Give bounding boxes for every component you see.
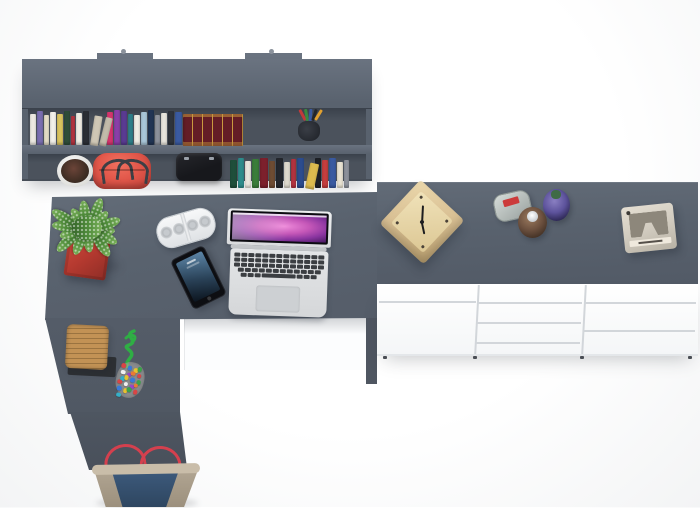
sideboard [377,178,698,380]
key [272,269,278,273]
key [255,273,261,277]
key [283,254,289,258]
book-spine [337,162,343,188]
book-spine [64,111,70,145]
bead [136,373,141,378]
key [251,268,257,272]
bead [123,381,128,386]
key [304,275,310,279]
key [293,270,299,274]
book-row-lower [230,157,356,188]
key [290,259,296,263]
key [262,263,268,267]
sideboard-section-seam [474,285,479,355]
bead [132,389,137,394]
key [276,264,282,268]
bead [121,363,126,368]
brown-bottle [518,207,547,238]
key [234,257,240,261]
key [311,260,317,264]
potted-plant [61,159,89,183]
screen-glare [232,212,294,242]
bottle-cap [551,190,561,199]
plant-leaf [72,216,102,240]
key [304,265,310,269]
sideboard-foot [383,356,387,359]
pens [298,109,322,123]
key [265,269,271,273]
clock-screw [421,245,425,249]
key [248,258,254,262]
key [248,263,254,267]
clock-screw [445,219,449,223]
speaker-driver [159,225,174,240]
key [258,268,264,272]
key [248,253,254,257]
book-spine [44,115,49,145]
drawer-seam [584,302,696,304]
book-spine [50,112,56,145]
flask-red-label [502,196,519,207]
key [283,259,289,263]
key [255,263,261,267]
key [262,258,268,262]
clock-screw [395,221,399,225]
key [255,253,261,257]
bead [126,387,131,392]
bead [127,365,132,370]
red-handbag [93,153,151,189]
book-spine [114,110,120,145]
book-spine [134,115,140,145]
book-spine [252,159,259,188]
book-spine [291,159,296,188]
key [311,275,317,279]
bag-buckle [209,157,214,160]
book-spine [329,158,336,188]
black-camera-bag [176,153,222,181]
book-spine [276,158,283,188]
speaker-driver [198,214,213,229]
drawer-seam [476,322,581,324]
phone-home-button [206,296,211,301]
key [290,264,296,268]
laptop [224,208,334,324]
laptop-bezel [230,210,329,244]
drawer-seam [475,342,580,344]
book-spine [161,113,167,145]
laptop-keyboard-deck [228,248,328,317]
bead [130,377,135,382]
book-spine [83,111,89,145]
shelf-mount-knob [121,49,126,54]
book-spine [168,111,174,145]
key [297,255,303,259]
sideboard-foot [473,356,477,359]
book-spine [322,160,328,188]
clock-center [419,219,425,225]
key [307,270,313,274]
sideboard-front [377,284,698,356]
book-spine [238,158,244,188]
key [314,270,320,274]
encyclopedia-set [183,114,243,146]
book-spine [269,161,275,188]
wall-shelf [22,48,372,182]
drawer-seam [583,330,695,332]
book-spine [245,161,251,188]
book-spine [128,114,133,145]
key [241,253,247,257]
book-spine [284,162,290,188]
key [255,258,261,262]
bead [120,369,125,374]
shelf-mount-knob [269,49,274,54]
book-spine [57,114,63,145]
key [318,265,324,269]
key [290,254,296,258]
key [234,262,240,266]
purple-bottle [543,189,570,221]
book-spine [76,113,82,145]
sideboard-section-seam [581,285,586,355]
key [234,252,240,256]
key [244,268,250,272]
sideboard-foot [688,356,692,359]
sideboard-bottom-edge [377,354,698,356]
key [297,265,303,269]
book-spine [37,111,43,145]
key [276,254,282,258]
bead [116,385,121,390]
bottle-cap [527,211,538,222]
key [318,255,324,259]
key [297,260,303,264]
bead [124,375,129,380]
desk-plant-foliage [44,192,130,266]
book-spine [230,160,237,188]
book-row-upper [30,111,184,145]
book-spine [297,158,304,188]
book-spine [30,114,36,145]
drawer-seam [477,302,582,304]
bead-charm [112,328,152,400]
book-spine [121,111,127,145]
book-spine [155,115,160,145]
laptop-keyboard [234,252,325,279]
key [279,269,285,273]
book-spine [175,112,182,145]
key [269,264,275,268]
key [248,273,254,277]
key [269,254,275,258]
bead [130,371,135,376]
key [311,255,317,259]
key [276,259,282,263]
book-spine [71,116,75,145]
clock-screw [419,195,423,199]
wicker-basket [65,324,109,370]
bead [133,383,138,388]
book-spine [141,112,147,145]
key [241,258,247,262]
bead [117,379,122,384]
handbag-seam [99,169,145,171]
shelf-body [22,59,372,181]
laptop-display [232,212,327,242]
key [300,270,306,274]
shelf-top-slab [22,59,372,109]
key [283,264,289,268]
floor-tote-bag [88,444,206,507]
bag-buckle [184,157,189,160]
key [262,253,268,257]
key [286,269,292,273]
key [297,275,303,279]
bead [116,392,121,397]
key [241,273,247,277]
book-spine [148,110,154,145]
drawer-seam [379,301,476,303]
key [269,259,275,263]
key [318,260,324,264]
pen-cup [298,121,320,141]
camera-face-plate [628,210,668,238]
tote-rim [92,463,200,475]
laptop-lid [227,208,332,248]
key [237,268,243,272]
furniture-scene [0,0,700,507]
key [241,263,247,267]
white-plant-pot [57,155,93,187]
laptop-trackpad [255,285,300,313]
retro-camera [621,202,678,253]
book-spine [344,160,349,188]
sideboard-foot [580,356,584,359]
key [304,260,310,264]
key [262,273,296,278]
book-spine [260,158,268,188]
key [304,255,310,259]
bead [137,367,142,372]
key [311,265,317,269]
